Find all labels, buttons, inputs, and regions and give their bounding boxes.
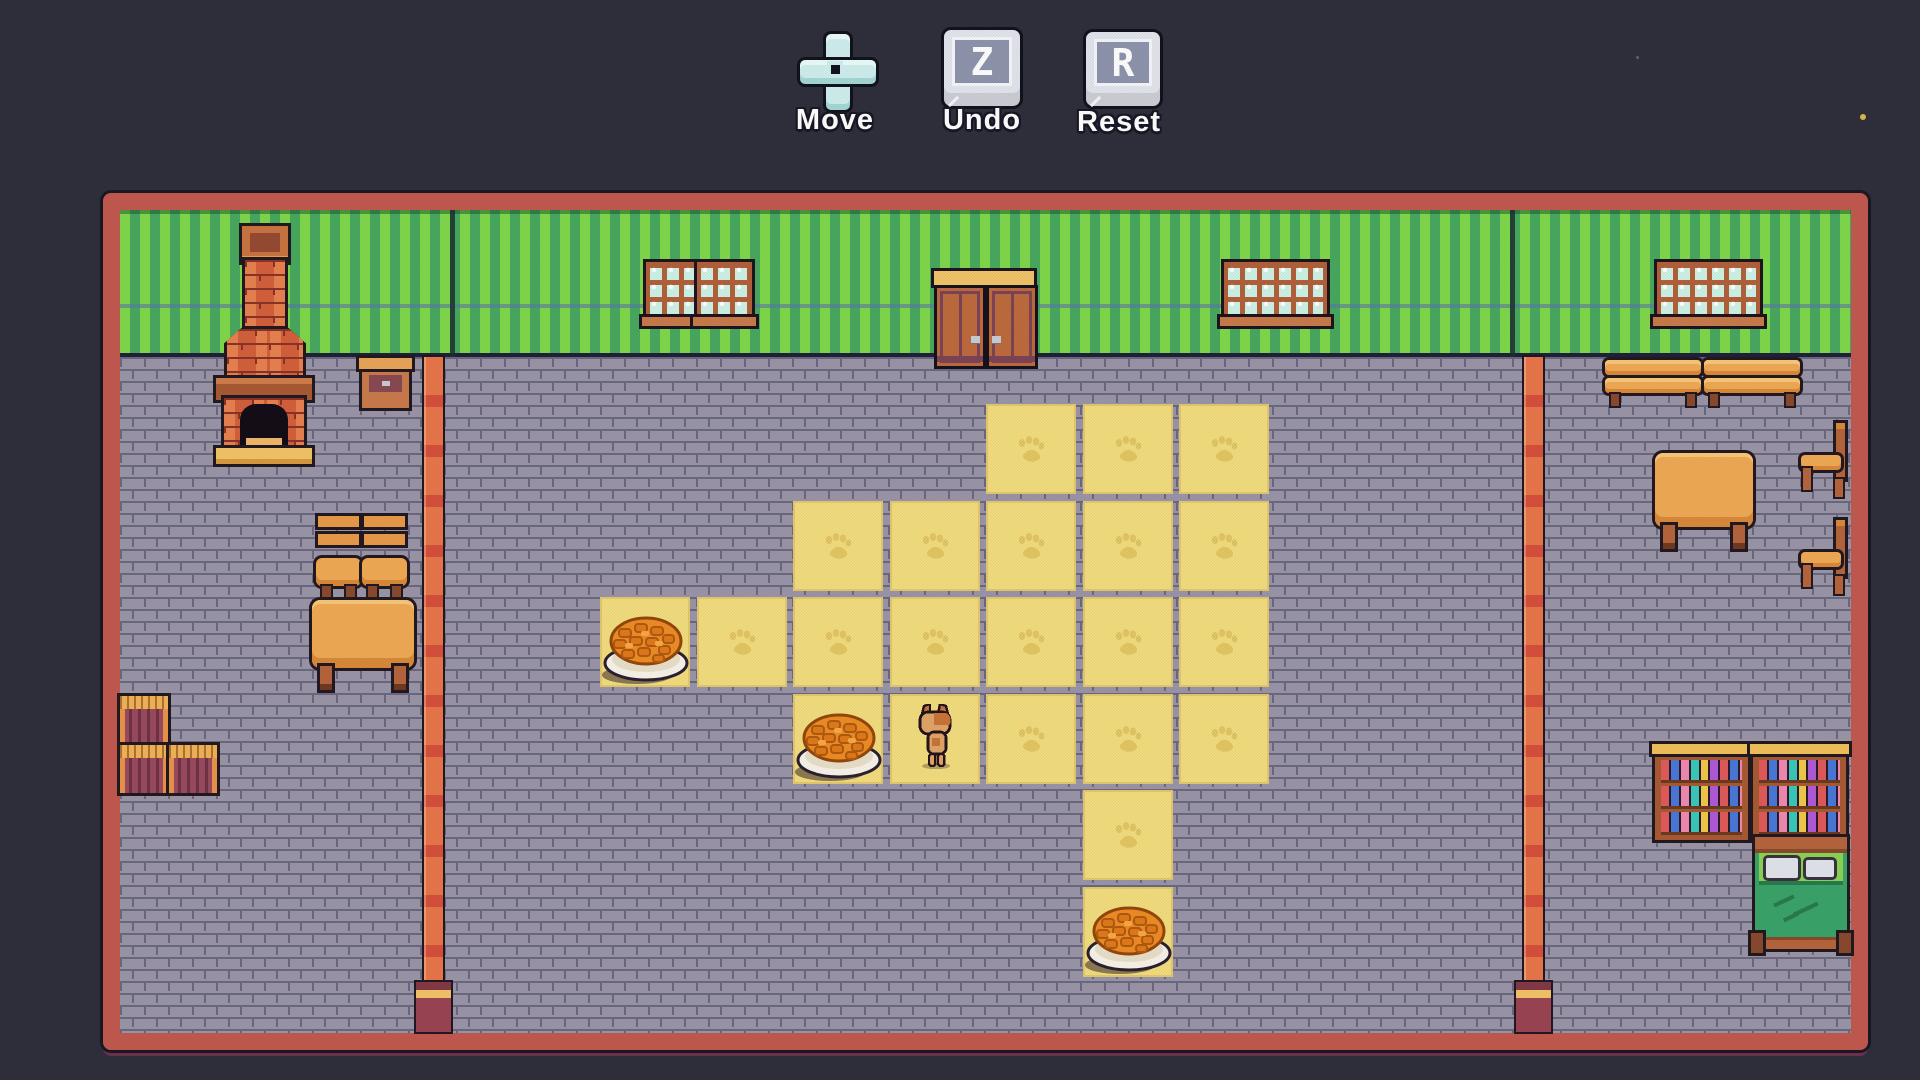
door-handle [971,336,980,343]
undo-keycap[interactable]: Z [941,27,1023,109]
book-row [1759,786,1840,806]
star-speck [1860,114,1866,120]
bookshelf [1753,744,1846,840]
game-viewport: Move Z Undo R Reset [0,0,1920,1080]
support-pillar-right [1524,357,1543,985]
window-small-1 [646,262,701,318]
dpad-center-hole [831,65,840,74]
bookshelf [1655,744,1748,840]
bench [1704,358,1800,406]
chair-side [1801,520,1847,600]
pillow [1763,855,1801,881]
wall-divider-right [1510,210,1515,357]
book-row [1759,812,1840,832]
dining-table-left [312,600,414,692]
book-row [1661,812,1742,832]
bed [1755,837,1847,949]
door-lintel [934,271,1034,285]
chair [362,514,407,602]
pillow [1803,857,1837,880]
door-handle [992,336,1001,343]
book-row [1759,760,1840,780]
window-wide-1 [1224,262,1327,318]
fireplace-shoulders [224,326,306,384]
z-key-letter: Z [952,37,1012,86]
reset-label: Reset [1059,106,1179,139]
floor [120,357,1851,1033]
fireplace-opening [240,404,288,450]
move-label: Move [775,104,895,137]
wall-divider-left [450,210,455,357]
star-speck [1636,56,1639,59]
bed-blanket [1759,881,1843,935]
door-leaf-right [986,285,1038,369]
pillar-base-right [1516,982,1551,1032]
bed-footboard [1755,937,1847,949]
door-band [989,356,1035,362]
window-wide-2 [1657,262,1760,318]
door-band [937,356,983,362]
dining-table-right [1655,453,1753,551]
bed-headboard [1755,837,1847,853]
fireplace [216,226,312,466]
support-pillar-left [424,357,443,985]
book-row [1661,786,1742,806]
undo-label: Undo [922,104,1042,137]
pillar-base-left [416,982,451,1032]
crate [169,745,217,793]
door-leaf-left [934,285,986,369]
crate [120,696,168,744]
fireplace-chimney [245,260,285,330]
fireplace-hearth [216,448,312,464]
crate [120,745,168,793]
bench [1605,358,1701,406]
reset-keycap[interactable]: R [1083,29,1163,109]
r-key-letter: R [1094,39,1152,86]
fireplace-chimney-cap [242,226,288,262]
double-door [934,271,1034,363]
fireplace-mantel [216,378,312,400]
move-dpad-icon[interactable] [797,31,873,107]
window-small-2 [697,262,752,318]
chair-side [1801,423,1847,503]
book-row [1661,760,1742,780]
nightstand [362,358,409,408]
cat-character [914,704,958,770]
drawer-handle [382,381,390,386]
chair [316,514,361,602]
